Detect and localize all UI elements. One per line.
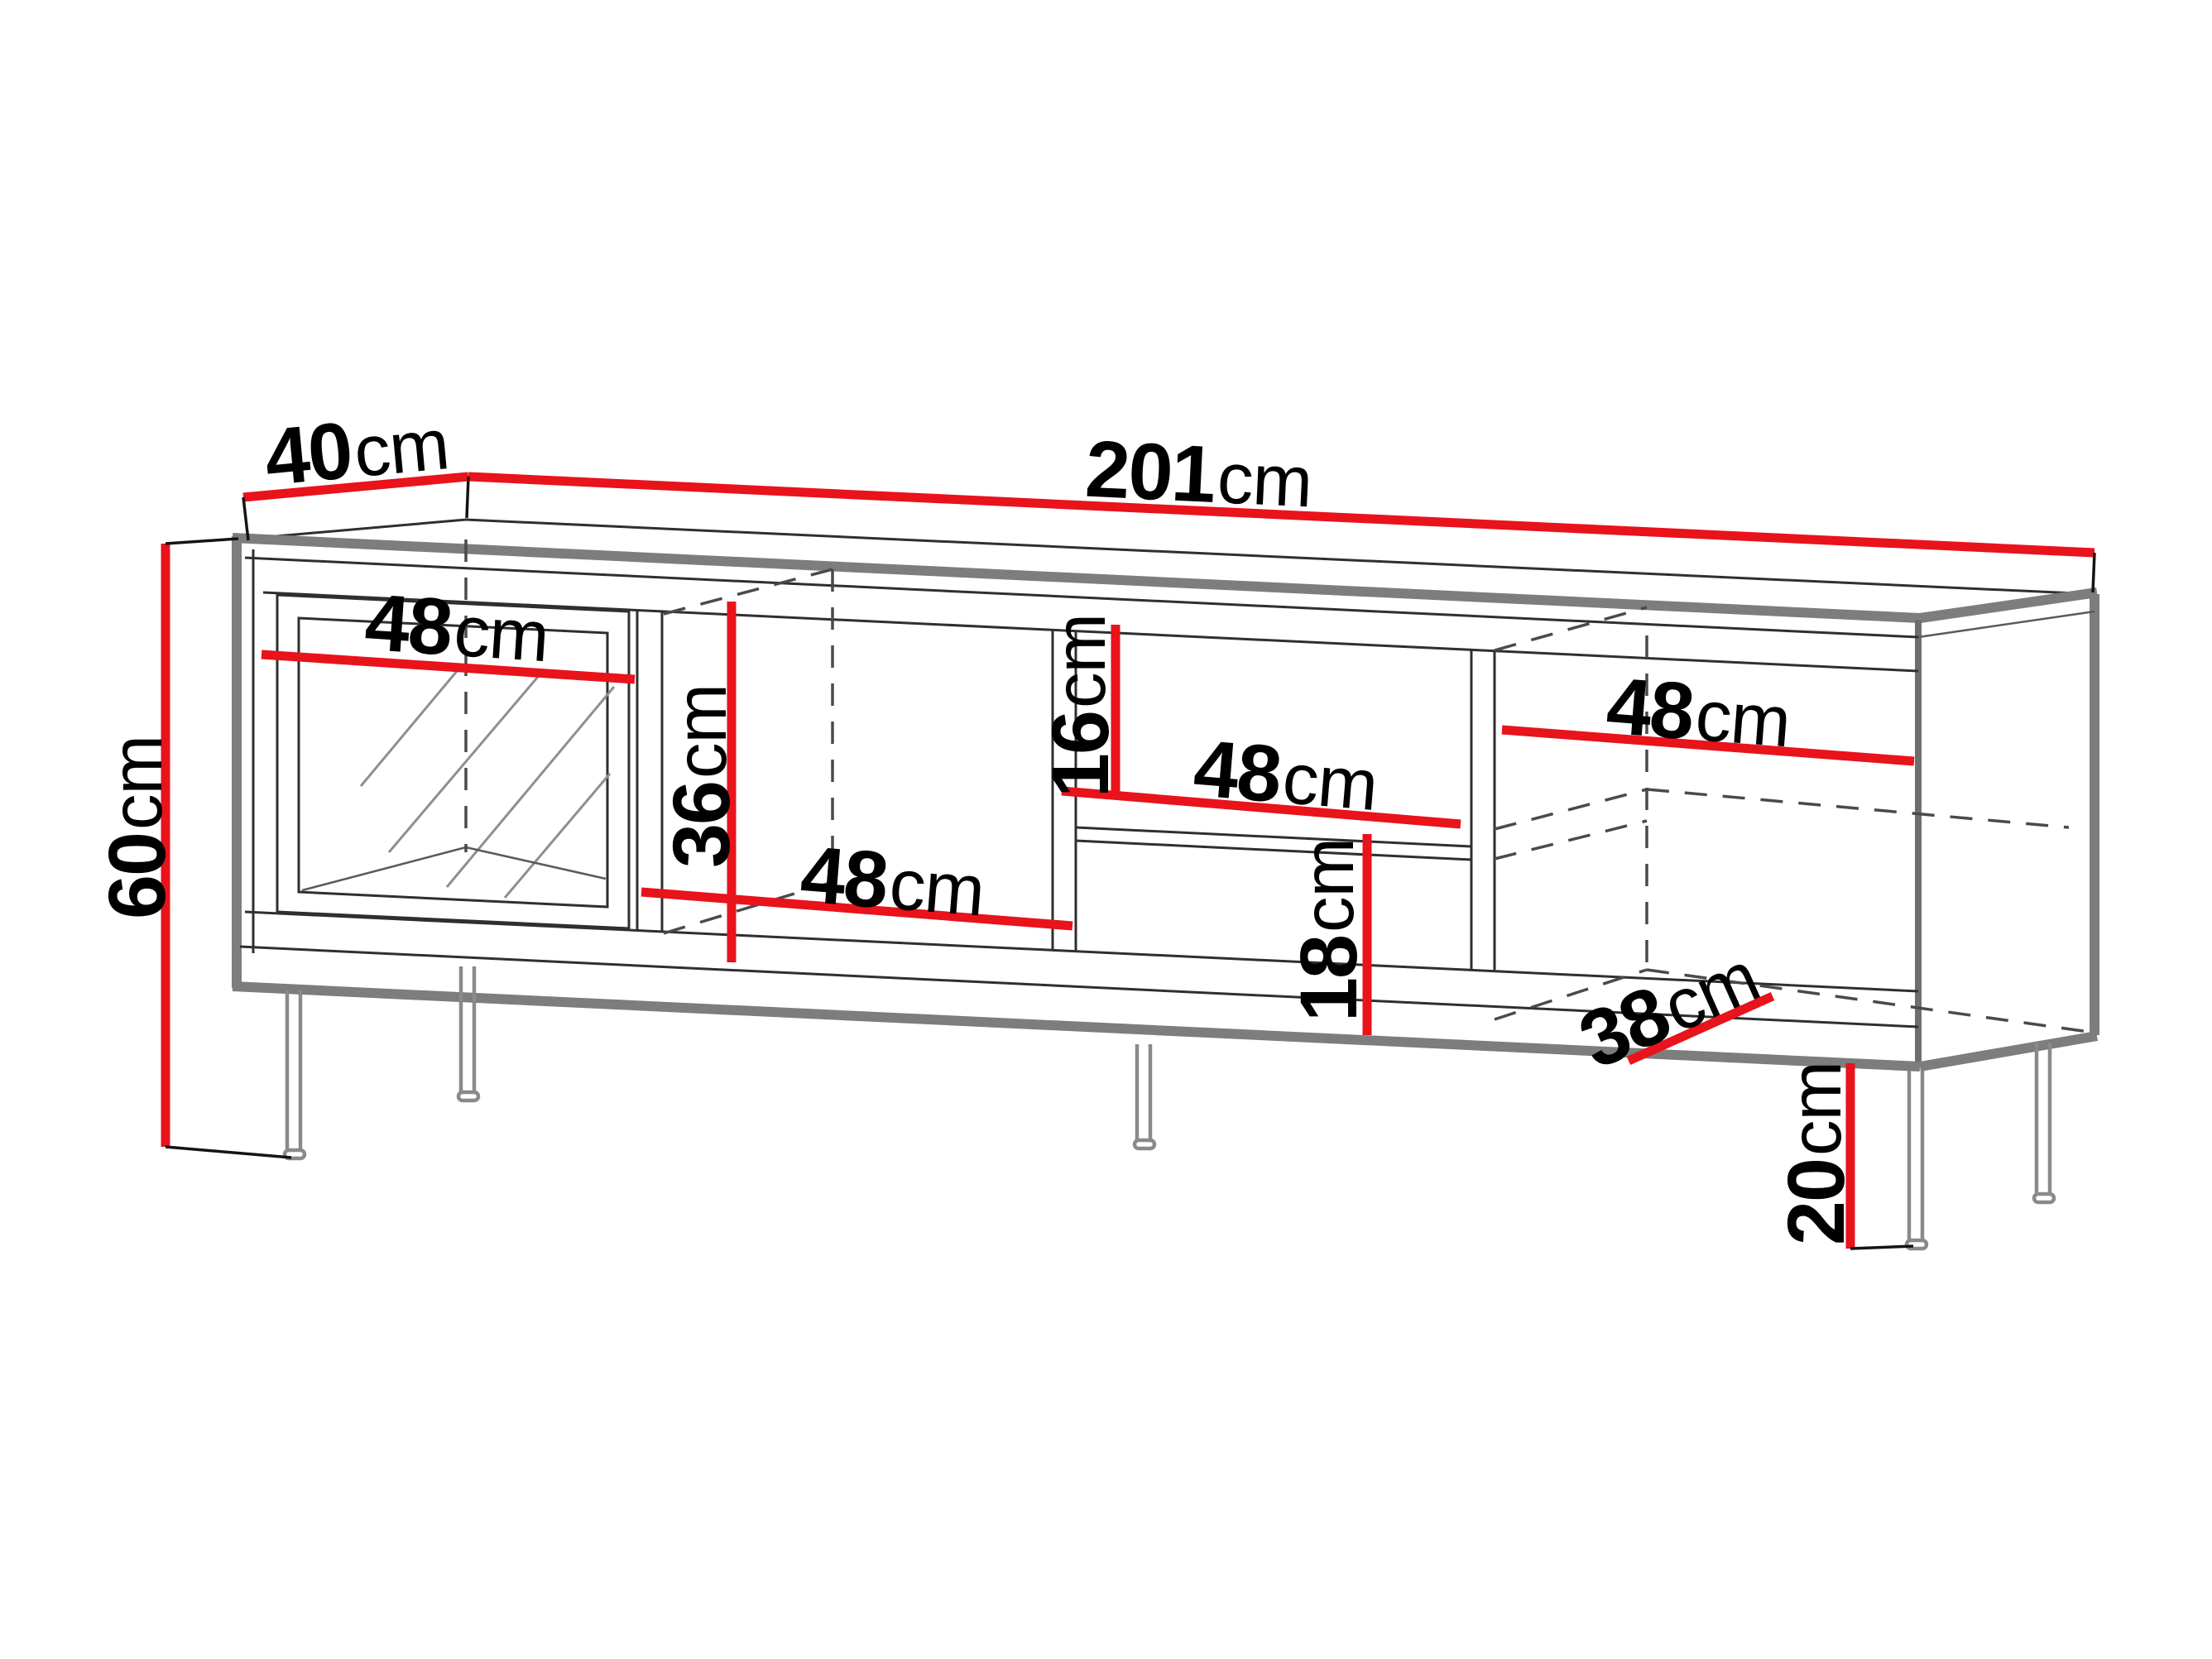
dim-value: 40 — [261, 405, 355, 502]
dim-value: 16 — [1035, 712, 1125, 798]
dim-label-shelf-gap-top: 16cm — [1035, 614, 1125, 798]
dim-label-leg-height: 20cm — [1771, 1062, 1861, 1245]
dim-unit: cm — [1216, 438, 1313, 522]
dim-unit: cm — [351, 404, 452, 492]
dim-tick — [166, 539, 238, 544]
dim-value: 48 — [362, 577, 454, 673]
dim-value: 48 — [798, 829, 890, 926]
dim-unit: cm — [452, 591, 551, 677]
dim-label-body-height: 60cm — [92, 736, 182, 919]
leg-foot — [2034, 1194, 2054, 1202]
dim-unit: cm — [1279, 738, 1380, 826]
dim-tick — [166, 1147, 291, 1158]
dim-unit: cm — [1040, 614, 1120, 708]
dimension-labels: 40cm 201cm 60cm 48cm 36cm 48cm 16cm 48cm… — [92, 396, 1861, 1245]
furniture-dimension-diagram: 40cm 201cm 60cm 48cm 36cm 48cm 16cm 48cm… — [0, 0, 2212, 1659]
dim-label-shelf-gap-bottom: 18cm — [1284, 838, 1374, 1022]
dim-label-comp2-width: 48cm — [798, 829, 988, 933]
dim-label-right-section-width: 48cm — [1604, 660, 1794, 765]
dim-label-total-width: 201cm — [1083, 424, 1314, 525]
dim-unit: cm — [886, 844, 986, 932]
glass-reflection-line — [447, 687, 614, 887]
tv-stand-drawing: 40cm 201cm 60cm 48cm 36cm 48cm 16cm 48cm… — [0, 0, 2212, 1659]
bottom-right-edge — [1920, 1036, 2097, 1067]
leg-foot — [458, 1092, 478, 1100]
dim-value: 36 — [656, 782, 746, 868]
leg-foot — [1135, 1140, 1154, 1148]
hidden-top-edge — [664, 569, 832, 614]
dim-value: 20 — [1771, 1159, 1861, 1245]
leg-back-right — [2034, 1043, 2054, 1202]
interior-floor-edge — [466, 847, 606, 879]
dim-value: 48 — [1191, 722, 1284, 819]
dim-unit: cm — [1693, 675, 1793, 762]
shelf — [1076, 827, 1471, 860]
hidden-shelf-edge — [1495, 789, 1647, 829]
dim-unit: cm — [1776, 1062, 1856, 1156]
dim-label-shelf-width: 48cm — [1191, 722, 1381, 827]
hidden-top-edge — [1495, 607, 1647, 650]
dim-label-left-door-width: 48cm — [362, 577, 552, 678]
leg-front-left — [285, 990, 305, 1158]
hidden-shelf-edge — [1495, 821, 1647, 859]
hidden-shelf-edge — [1647, 789, 2069, 827]
dim-value: 48 — [1604, 660, 1696, 757]
leg-front-right — [1907, 1071, 1927, 1249]
dim-tick — [1850, 1246, 1913, 1249]
glass-reflection-line — [361, 670, 458, 786]
dim-tick — [2093, 553, 2094, 592]
interior-floor-edge — [302, 847, 466, 890]
dim-value: 60 — [92, 833, 182, 919]
dim-value: 18 — [1284, 936, 1374, 1022]
dim-unit: cm — [1288, 838, 1369, 933]
dim-tick — [467, 477, 468, 518]
leg-back-left — [458, 966, 478, 1100]
dim-unit: cm — [661, 684, 741, 779]
dim-unit: cm — [97, 736, 177, 830]
glass-reflection-line — [505, 774, 610, 898]
leg-front-middle — [1135, 1044, 1154, 1148]
dim-label-comp2-height: 36cm — [656, 684, 746, 868]
dim-value: 201 — [1083, 424, 1216, 520]
